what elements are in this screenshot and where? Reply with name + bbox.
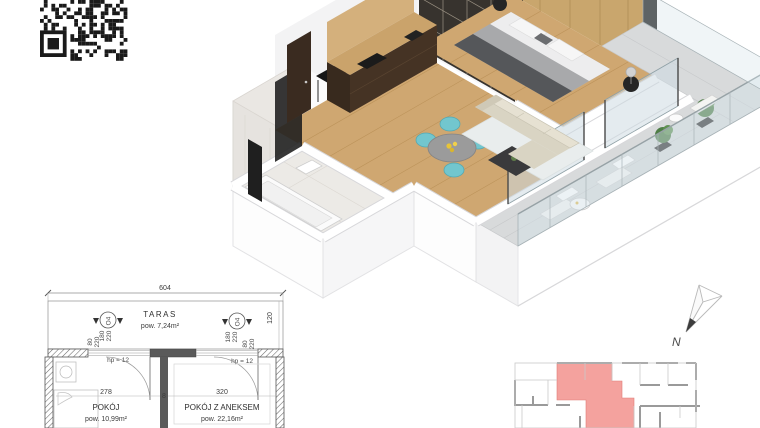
towel-radiator xyxy=(248,139,262,202)
svg-text:hp = 12: hp = 12 xyxy=(107,357,129,364)
svg-text:220: 220 xyxy=(94,336,101,347)
flowers xyxy=(446,143,451,148)
svg-text:O4: O4 xyxy=(106,316,113,325)
svg-text:320: 320 xyxy=(216,389,228,396)
dim-overall: 604 xyxy=(45,285,286,301)
room2-label: POKÓJ Z ANEKSEM xyxy=(184,403,259,412)
svg-text:220: 220 xyxy=(249,338,256,349)
north-label: N xyxy=(672,335,681,349)
entrance-door xyxy=(287,31,311,123)
sphere-lamp xyxy=(626,67,636,77)
dim-terrace-depth: 120 xyxy=(267,301,279,349)
terrace-label: TARAS xyxy=(143,310,177,319)
window-marker-1: O4 180 220 80 220 hp = 12 xyxy=(87,312,129,364)
dining-chair xyxy=(444,163,464,177)
room1-area: pow. 10,99m² xyxy=(85,416,128,423)
svg-text:120: 120 xyxy=(267,312,274,324)
sheet-graphics: 604 120 TARAS pow. 7,24m² xyxy=(0,0,760,428)
svg-text:8: 8 xyxy=(162,393,166,400)
terrace-area: pow. 7,24m² xyxy=(141,323,180,330)
dim-604: 604 xyxy=(159,285,171,292)
highlighted-unit xyxy=(557,363,634,428)
window-marker-2: O4 180 220 80 220 hp = 12 xyxy=(222,313,256,365)
svg-text:180: 180 xyxy=(225,331,232,342)
svg-text:220: 220 xyxy=(232,331,239,342)
dining-chair xyxy=(440,117,460,131)
exterior-wall xyxy=(48,349,283,357)
unit-location-plan xyxy=(515,363,700,428)
svg-text:O4: O4 xyxy=(235,317,242,326)
door-handle xyxy=(305,81,308,84)
svg-text:220: 220 xyxy=(106,330,113,341)
room1-label: POKÓJ xyxy=(92,403,119,412)
svg-text:80: 80 xyxy=(87,338,94,346)
room2-area: pow. 22,16m² xyxy=(201,416,244,423)
floorplan-sheet: 604 120 TARAS pow. 7,24m² xyxy=(0,0,760,428)
svg-text:278: 278 xyxy=(100,389,112,396)
isometric-render xyxy=(233,0,760,306)
north-arrow: N xyxy=(672,285,722,349)
svg-text:80: 80 xyxy=(242,340,249,348)
plan-2d: 604 120 TARAS pow. 7,24m² xyxy=(45,285,286,428)
